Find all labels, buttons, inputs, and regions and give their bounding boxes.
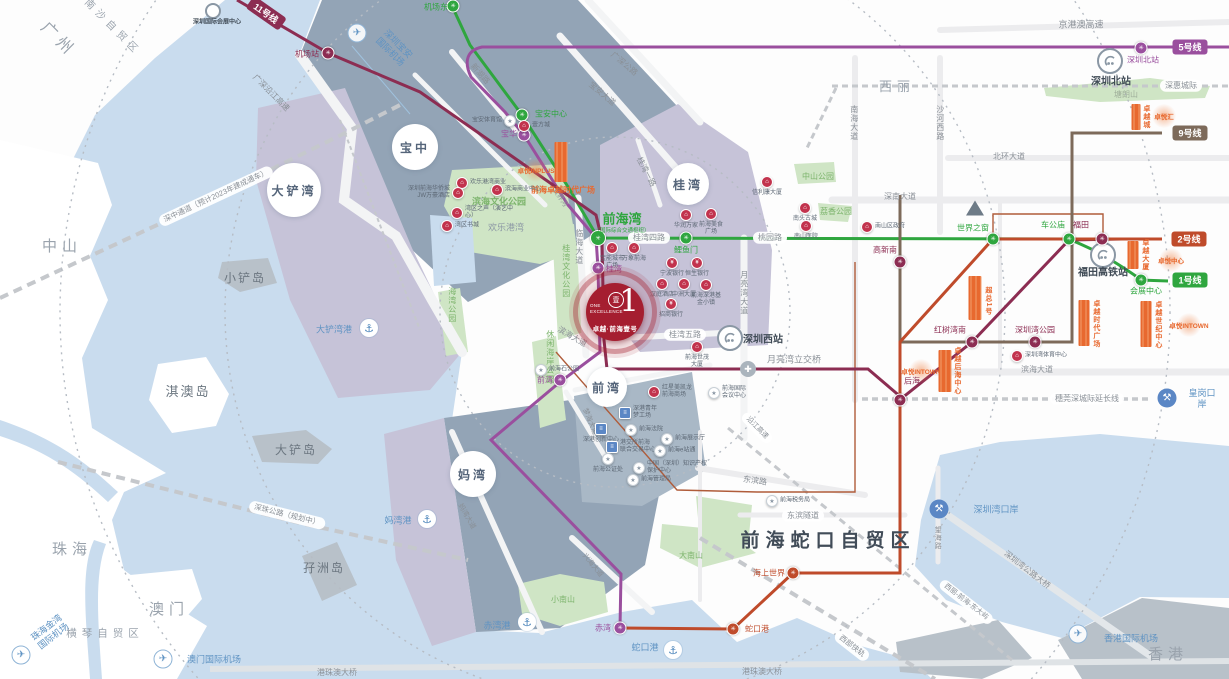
plane-icon[interactable]: ✈ xyxy=(154,650,173,669)
metro-station-label: 深圳北站 xyxy=(1127,55,1159,66)
poi-label: 前海公证处 xyxy=(593,467,623,474)
map-canvas: ✚ ONE EXCELLENCE 壹 1 卓越·前海壹号 广州南沙自贸区中山西丽… xyxy=(0,0,1229,679)
poi-icon[interactable]: ¥ xyxy=(665,298,677,310)
metro-station-label: 机场站 xyxy=(295,49,319,60)
orange-building-label: 卓越城 xyxy=(1142,105,1150,129)
poi-icon[interactable]: ⌂ xyxy=(452,187,464,199)
project-core: ONE EXCELLENCE 壹 1 卓越·前海壹号 xyxy=(586,283,644,341)
poi-icon[interactable]: ⌂ xyxy=(700,279,712,291)
metro-station-icon[interactable]: ✳ xyxy=(1029,336,1042,349)
metro-station-label: 车公庙 xyxy=(1041,220,1065,231)
metro-station-label: 世界之窗 xyxy=(957,223,989,234)
poi-icon[interactable]: ⌂ xyxy=(606,242,618,254)
poi-label: 前海石公园 xyxy=(549,367,579,374)
anchor-icon[interactable]: ⚓ xyxy=(664,641,682,659)
poi-label: 华润万家 xyxy=(674,223,698,230)
anchor-icon[interactable]: ⚓ xyxy=(418,510,436,528)
brand-circle-label: 卓悦INPLUS xyxy=(518,165,555,175)
project-marker[interactable]: ONE EXCELLENCE 壹 1 卓越·前海壹号 xyxy=(586,283,644,341)
orange-building xyxy=(1141,301,1152,347)
poi-icon[interactable]: ¥ xyxy=(666,257,678,269)
poi-label: 深圳前海华侨城 JW万豪酒店 xyxy=(408,186,450,200)
metro-station-label: 红树湾南 xyxy=(934,325,966,336)
poi-label: 湾区书城 xyxy=(455,223,479,230)
poi-label: 前海深港基金小镇 xyxy=(689,293,723,307)
poi-icon[interactable]: ¥ xyxy=(691,257,703,269)
rail-station-label: 深圳西站 xyxy=(743,331,783,346)
window-of-world-icon xyxy=(966,201,984,216)
poi-label: 前海法院 xyxy=(639,427,663,434)
poi-label: 前海国际 会议中心 xyxy=(722,386,746,400)
poi-icon[interactable]: ⌂ xyxy=(705,208,717,220)
metro-station-label: 高新南 xyxy=(873,245,897,256)
poi-icon[interactable]: ⌂ xyxy=(680,209,692,221)
poi-icon[interactable]: ⌂ xyxy=(648,386,660,398)
orange-building xyxy=(969,276,982,320)
area-circle-label: 宝中 xyxy=(392,124,438,170)
line-badge: 5号线 xyxy=(1172,40,1207,55)
rail-station-label: 福田高铁站 xyxy=(1078,264,1128,279)
poi-label: 前海e站通 xyxy=(668,448,695,455)
metro-station-icon[interactable]: ✳ xyxy=(727,623,740,636)
metro-station-icon[interactable]: ✳ xyxy=(322,47,335,60)
poi-icon[interactable]: ≡ xyxy=(606,441,618,453)
poi-label: 前海世茂大厦 xyxy=(683,355,711,369)
poi-icon[interactable]: ⌂ xyxy=(691,341,703,353)
metro-station-icon[interactable]: ✳ xyxy=(894,394,907,407)
poi-label: 深圳湾体育中心 xyxy=(1025,353,1067,360)
metro-station-icon[interactable]: ✳ xyxy=(680,232,693,245)
poi-label: 恒生银行 xyxy=(685,271,709,278)
orange-building-label: 卓越世纪中心 xyxy=(1154,301,1162,349)
metro-station-icon[interactable]: ✳ xyxy=(787,567,800,580)
poi-icon[interactable]: ★ xyxy=(633,462,645,474)
metro-station-label: 深圳湾公园 xyxy=(1015,325,1055,336)
poi-icon[interactable]: ⌂ xyxy=(799,202,811,214)
poi-label: 宝安体育馆 xyxy=(472,118,502,125)
poi-icon[interactable]: ★ xyxy=(625,424,637,436)
poi-icon[interactable]: ★ xyxy=(654,445,666,457)
metro-station-icon[interactable]: ✳ xyxy=(894,256,907,269)
poi-icon[interactable]: ≡ xyxy=(595,423,607,435)
port-icon[interactable]: ⚒ xyxy=(1158,389,1177,408)
metro-station-label: 宝安中心 xyxy=(535,109,567,120)
metro-station-icon[interactable]: ✳ xyxy=(1096,233,1109,246)
orange-building xyxy=(1079,300,1090,346)
metro-station-label: 宝华 xyxy=(501,129,517,140)
poi-icon[interactable]: ⌂ xyxy=(628,242,640,254)
metro-station-label: 前海湾 xyxy=(602,209,641,228)
anchor-icon[interactable]: ⚓ xyxy=(360,319,378,337)
rail-station-icon[interactable] xyxy=(1097,48,1123,74)
poi-icon[interactable]: ★ xyxy=(602,453,614,465)
poi-label: 宁波银行 xyxy=(660,271,684,278)
poi-label: 湾区之声（演艺中心） xyxy=(465,206,517,220)
orange-building-label: 超总1号 xyxy=(984,287,992,316)
area-circle-label: 桂湾 xyxy=(667,163,709,205)
metro-station-sublabel: （国际综合交通枢纽） xyxy=(594,226,649,234)
brand-circle-label: 卓悦汇 xyxy=(1154,111,1174,121)
poi-icon[interactable]: ★ xyxy=(535,364,547,376)
poi-icon[interactable]: ★ xyxy=(661,433,673,445)
orange-building xyxy=(555,142,568,182)
poi-label: 前海税务局 xyxy=(780,498,810,505)
brand-circle-label: 卓悦INTOWN xyxy=(901,366,940,376)
area-circle-label: 妈湾 xyxy=(450,451,496,497)
brand-circle-label: 卓悦INTOWN xyxy=(1169,320,1208,330)
poi-label: 壹方城 xyxy=(532,123,550,130)
poi-label: 招商银行 xyxy=(659,312,683,319)
orange-building-label: 卓越后海中心 xyxy=(953,347,961,395)
anchor-icon[interactable]: ⚓ xyxy=(518,613,536,631)
metro-station-icon[interactable]: ✳ xyxy=(447,0,460,13)
orange-building-label: 卓越大厦 xyxy=(1141,239,1149,271)
poi-icon[interactable]: ★ xyxy=(708,387,720,399)
poi-icon[interactable]: ⌂ xyxy=(761,176,773,188)
poi-icon[interactable]: ⌂ xyxy=(656,278,668,290)
metro-station-icon[interactable]: ✳ xyxy=(966,336,979,349)
poi-icon[interactable]: ≡ xyxy=(619,407,631,419)
metro-station-label: 机场东 xyxy=(424,2,448,13)
metro-station-label: 赤湾 xyxy=(595,623,611,634)
metro-station-icon[interactable]: ✳ xyxy=(554,374,567,387)
poi-label: 前海管理局 xyxy=(641,477,671,484)
poi-icon[interactable]: ⌂ xyxy=(1011,350,1023,362)
project-name-cn: 卓越·前海壹号 xyxy=(586,323,644,333)
orange-building xyxy=(1132,104,1141,130)
poi-icon[interactable]: ★ xyxy=(627,474,639,486)
metro-station-icon[interactable]: ✳ xyxy=(987,233,1000,246)
poi-label: 万象前海 xyxy=(622,256,646,263)
metro-station-label: 海上世界 xyxy=(753,568,785,579)
line-badge: 2号线 xyxy=(1171,232,1206,247)
poi-label: 中国（深圳）知识产权 保护中心 xyxy=(647,461,707,475)
poi-label: 南山区政府 xyxy=(875,224,905,231)
project-number: 1 xyxy=(619,283,639,319)
rail-station-icon[interactable] xyxy=(717,325,743,351)
poi-label: 南山医院 xyxy=(794,234,818,241)
metro-station-label: 会展中心 xyxy=(1130,286,1162,297)
area-circle-label: 大铲湾 xyxy=(267,163,321,217)
poi-label: 港交所前海 联合交易中心 xyxy=(620,440,656,454)
line-badge: 1号线 xyxy=(1172,273,1207,288)
metro-station-label: 蛇口港 xyxy=(745,624,769,635)
metro-station-label: 前湾 xyxy=(537,375,553,386)
poi-icon[interactable]: ⌂ xyxy=(441,220,453,232)
poi-icon[interactable]: ⌂ xyxy=(518,120,530,132)
poi-icon[interactable]: ⌂ xyxy=(800,220,812,232)
poi-icon[interactable]: ⌂ xyxy=(491,184,503,196)
interchange-icon: ✚ xyxy=(740,361,756,377)
plane-icon[interactable]: ✈ xyxy=(1069,625,1088,644)
metro-station-icon[interactable]: ✳ xyxy=(1063,233,1076,246)
poi-label: 信利康大厦 xyxy=(752,190,782,197)
poi-icon[interactable]: ★ xyxy=(766,495,778,507)
poi-label: 前海美食广场 xyxy=(697,222,725,236)
port-icon[interactable]: ⚒ xyxy=(930,500,949,519)
rail-station-label: 深圳国际会展中心 xyxy=(193,17,241,26)
area-circle-label: 前湾 xyxy=(587,367,627,407)
line-badge: 9号线 xyxy=(1172,126,1207,141)
poi-label: 深港青年 梦工场 xyxy=(633,406,657,420)
orange-building-label: 卓越时代广场 xyxy=(1092,300,1100,348)
metro-station-icon[interactable]: ✳ xyxy=(1135,42,1148,55)
metro-station-icon[interactable]: ✳ xyxy=(614,622,627,635)
metro-station-label: 福田 xyxy=(1073,220,1089,231)
poi-icon[interactable]: ⌂ xyxy=(861,221,873,233)
poi-icon[interactable]: ⌂ xyxy=(678,278,690,290)
orange-building xyxy=(1128,241,1139,269)
plane-icon[interactable]: ✈ xyxy=(348,24,367,43)
brand-circle-label: 卓悦中心 xyxy=(1158,255,1184,265)
poi-label: 滨海商业中心 xyxy=(505,187,541,194)
poi-icon[interactable]: ⌂ xyxy=(451,207,463,219)
poi-label: 红星美凯龙 前海商场 xyxy=(662,385,692,399)
plane-icon[interactable]: ✈ xyxy=(12,646,31,665)
poi-icon[interactable]: ★ xyxy=(504,115,516,127)
metro-station-label: 后海 xyxy=(904,376,920,387)
metro-station-label: 鲤鱼门 xyxy=(674,245,698,256)
poi-label: 前海展示厅 xyxy=(675,436,705,443)
rail-station-label: 深圳北站 xyxy=(1091,73,1131,88)
